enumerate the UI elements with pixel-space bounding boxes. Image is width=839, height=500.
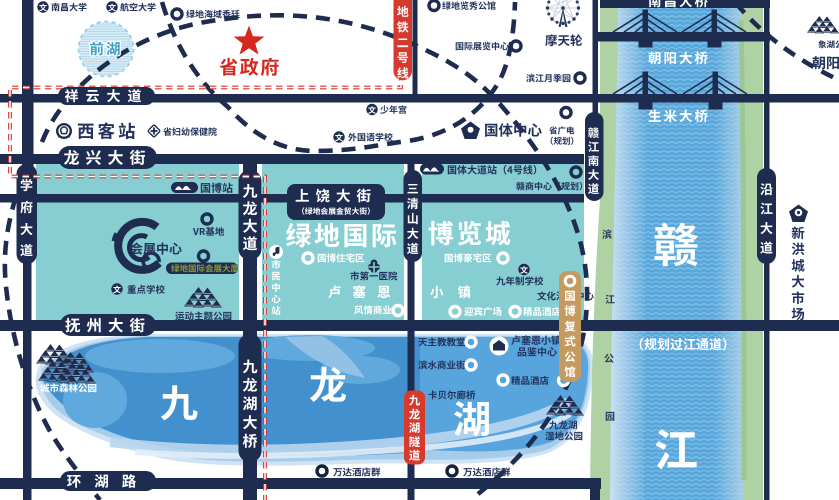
svg-text:象湖公园: 象湖公园 <box>818 39 839 51</box>
svg-text:九龙湖大桥: 九龙湖大桥 <box>242 356 257 451</box>
svg-text:南昌大学: 南昌大学 <box>51 1 87 14</box>
svg-text:国博站: 国博站 <box>200 180 233 196</box>
svg-text:（规划过江通道）: （规划过江通道） <box>631 334 735 353</box>
svg-text:九年制学校: 九年制学校 <box>496 274 544 288</box>
svg-text:博览城: 博览城 <box>428 214 514 251</box>
svg-text:城市森林公园: 城市森林公园 <box>40 381 97 395</box>
svg-text:万达酒店群: 万达酒店群 <box>333 465 381 479</box>
svg-text:（规划）: （规划） <box>545 135 579 147</box>
svg-text:沿江大道: 沿江大道 <box>760 179 773 257</box>
svg-text:绿地览秀公馆: 绿地览秀公馆 <box>442 0 496 12</box>
svg-text:环湖路: 环湖路 <box>67 471 150 492</box>
svg-text:九龙湖隧道: 九龙湖隧道 <box>409 393 421 464</box>
svg-text:国体大道站（4号线）: 国体大道站（4号线） <box>447 162 543 177</box>
svg-text:前湖: 前湖 <box>90 38 123 59</box>
svg-text:会展中心: 会展中心 <box>130 239 182 258</box>
svg-text:迎宾广场: 迎宾广场 <box>464 304 503 318</box>
svg-text:卢塞恩: 卢塞恩 <box>328 281 402 301</box>
svg-text:上饶大街: 上饶大街 <box>295 185 377 206</box>
svg-text:国博住宅区: 国博住宅区 <box>317 251 365 265</box>
svg-text:外国语学校: 外国语学校 <box>348 131 393 144</box>
svg-text:小镇: 小镇 <box>430 281 485 301</box>
svg-text:园: 园 <box>605 408 615 423</box>
svg-text:三清山大道: 三清山大道 <box>407 180 419 257</box>
svg-text:精品酒店: 精品酒店 <box>511 373 550 387</box>
svg-text:湖: 湖 <box>453 389 491 444</box>
svg-text:湿地公园: 湿地公园 <box>545 429 583 443</box>
svg-text:朝阳大桥: 朝阳大桥 <box>648 47 710 67</box>
svg-text:地铁二号线: 地铁二号线 <box>397 3 409 82</box>
svg-text:生米大桥: 生米大桥 <box>648 105 710 125</box>
svg-text:南昌大桥: 南昌大桥 <box>648 0 710 10</box>
svg-text:运动主题公园: 运动主题公园 <box>175 309 232 323</box>
svg-text:少年宫: 少年宫 <box>380 103 407 116</box>
svg-text:龙: 龙 <box>309 355 347 410</box>
svg-text:精品酒店: 精品酒店 <box>523 304 562 318</box>
svg-text:江: 江 <box>654 415 698 479</box>
svg-text:VR基地: VR基地 <box>192 224 225 238</box>
svg-text:赣商中心（规划）: 赣商中心（规划） <box>516 180 588 193</box>
svg-text:绿地海域香廷: 绿地海域香廷 <box>186 8 240 21</box>
svg-text:省政府: 省政府 <box>219 53 281 80</box>
svg-text:滨江月季园: 滨江月季园 <box>526 72 571 85</box>
svg-text:赣江南大道: 赣江南大道 <box>588 125 600 197</box>
svg-text:朝阳洲: 朝阳洲 <box>812 53 839 73</box>
svg-text:国际展览中心: 国际展览中心 <box>455 40 509 53</box>
svg-text:九龙大道: 九龙大道 <box>242 181 257 255</box>
svg-text:公: 公 <box>604 350 614 365</box>
svg-text:西客站: 西客站 <box>77 119 139 144</box>
svg-text:国体中心: 国体中心 <box>484 120 542 141</box>
svg-text:江: 江 <box>605 291 615 306</box>
svg-text:龙兴大街: 龙兴大街 <box>63 145 151 169</box>
svg-text:摩天轮: 摩天轮 <box>545 30 583 49</box>
svg-text:滨水商业街: 滨水商业街 <box>418 358 466 372</box>
svg-text:航空大学: 航空大学 <box>120 1 156 14</box>
svg-text:风情商业: 风情商业 <box>354 303 393 317</box>
svg-text:赣: 赣 <box>653 210 699 276</box>
svg-text:国博复式公馆: 国博复式公馆 <box>564 288 576 380</box>
svg-text:国博豪宅区: 国博豪宅区 <box>444 251 492 265</box>
svg-text:品鉴中心: 品鉴中心 <box>517 344 557 359</box>
svg-text:抚州大街: 抚州大街 <box>65 314 151 336</box>
svg-text:省妇幼保健院: 省妇幼保健院 <box>163 125 217 138</box>
svg-text:市民中心站: 市民中心站 <box>271 257 281 317</box>
svg-text:绿地国际会展大厦: 绿地国际会展大厦 <box>171 263 240 275</box>
svg-text:九: 九 <box>160 373 198 428</box>
svg-text:祥云大道: 祥云大道 <box>65 86 149 106</box>
svg-text:滨: 滨 <box>602 226 612 241</box>
svg-text:万达酒店群: 万达酒店群 <box>463 465 511 479</box>
svg-text:绿地国际: 绿地国际 <box>285 216 399 253</box>
svg-text:新洪城大市场: 新洪城大市场 <box>791 222 805 323</box>
svg-text:天主教教堂: 天主教教堂 <box>418 335 466 349</box>
svg-text:重点学校: 重点学校 <box>127 282 166 296</box>
